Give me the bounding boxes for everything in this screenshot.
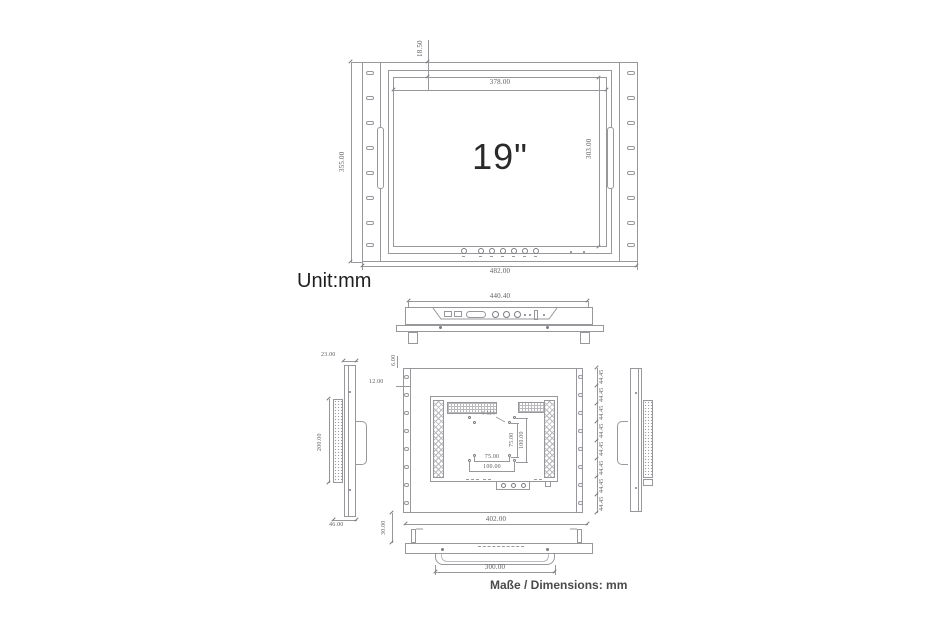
topview-foot-left [408,332,418,344]
dimensions-note: Maße / Dimensions: mm [490,578,627,592]
dim-ext-line [516,462,528,463]
connector-dot [524,314,526,316]
connector-port [545,481,551,487]
rack-slot [404,375,409,379]
osd-button-label-mark [523,256,526,257]
rear-ear-line-left [410,368,411,513]
rack-slot [404,483,409,487]
dim-panel-height: 355.00 [339,145,346,179]
dim-line-panel-height [351,62,352,262]
dim-rear-side-inset: 12.00 [369,379,384,385]
front-handle-right [607,127,614,189]
osd-button [533,248,539,254]
dim-rack-unit: 44.45 [599,496,605,512]
dim-top-offset: 18.50 [417,36,424,62]
dim-topview-width: 440.40 [476,293,524,300]
osd-button-label-mark [534,256,537,257]
screen-size-label: 19" [450,136,550,178]
rack-slot [627,121,635,125]
connector-mark [476,479,479,480]
rack-slot [578,375,583,379]
rack-slot [404,429,409,433]
rear-ear-line-right [576,368,577,513]
dim-side-top-depth: 23.00 [321,352,336,358]
dim-line-topview-width [408,301,588,302]
rack-slot [366,96,374,100]
rack-slot [366,221,374,225]
osd-button-label-mark [512,256,515,257]
rack-slot [578,465,583,469]
vesa-callout: 4-M4 [481,411,495,417]
connector-port [643,479,653,486]
osd-button-label-mark [479,256,482,257]
vesa-hole [468,416,471,419]
dim-ext-line [509,456,510,462]
dim-screen-height: 303.00 [586,132,593,166]
connector-dot [529,314,531,316]
osd-button [478,248,484,254]
front-handle-left [377,127,384,189]
dim-line-vent-height [329,399,330,483]
dim-rack-unit: 44.45 [599,387,605,403]
rear-vent-grid-right [518,402,545,413]
rack-slot [578,411,583,415]
screw-mark [546,326,549,329]
round-connector [503,311,510,318]
rack-slot [404,447,409,451]
dim-line-recess-width [435,572,555,573]
connector-mark [534,479,537,480]
rack-slot [627,146,635,150]
side-slab-face-line [348,365,349,517]
vga-connector [466,311,486,318]
rack-slot [627,71,635,75]
dim-ext-line [469,461,470,472]
mount-bracket [411,529,416,543]
dim-ext-line [351,62,362,63]
rack-slot [627,243,635,247]
round-connector [501,483,506,488]
rack-slot [578,483,583,487]
screw-mark [635,487,637,489]
dim-rack-unit: 44.45 [599,478,605,494]
connector-mark [483,479,486,480]
rack-slot [366,146,374,150]
screw-mark [546,548,549,551]
dim-ext-line [511,457,519,458]
dim-ext-line [514,461,515,472]
round-connector [492,311,499,318]
dim-side-bottom-depth: 46.00 [329,522,344,528]
dim-panel-width: 482.00 [474,268,526,275]
dim-vent-height: 200.00 [317,424,323,460]
side-slab [344,365,356,517]
rack-slot [578,429,583,433]
side-vent-strip [643,400,653,478]
dim-line-screen-width [393,90,607,91]
dim-line-vesa-v75 [517,423,518,457]
topview-flange [396,325,604,332]
dim-screen-width: 378.00 [474,79,526,86]
mount-bracket [577,529,582,543]
rack-slot [366,243,374,247]
dim-line-rear-width [405,524,588,525]
dim-rack-unit: 44.45 [599,441,605,457]
side-slab [630,368,642,512]
dim-vesa-height-75: 75.00 [509,428,515,452]
dim-line-bottom-gap [392,513,393,543]
dim-rack-unit: 44.45 [599,405,605,421]
front-ear-line-right [619,62,620,262]
dim-line-vesa-h100 [469,471,515,472]
round-connector [521,483,526,488]
rack-slot [627,221,635,225]
dim-rear-width: 402.00 [472,516,520,523]
ir-sensor [583,251,585,253]
osd-button [511,248,517,254]
dim-line [396,386,410,387]
topview-body [405,307,593,325]
screw-mark [635,392,637,394]
osd-button [500,248,506,254]
screw-mark [441,548,444,551]
connector-mark [471,479,474,480]
technical-drawing-canvas: 19" 18.50 378.00 303.00 355.00 482.00 [0,0,950,630]
side-handle [356,421,367,465]
dim-vesa-width-100: 100.00 [469,464,515,470]
dim-ext-line [397,356,398,368]
side-slab-face-line [638,368,639,512]
dim-vesa-height-100: 100.00 [519,426,525,454]
dim-recess-width: 300.00 [471,564,519,571]
rack-slot [404,501,409,505]
side-handle [617,421,628,465]
osd-button [489,248,495,254]
rack-slot [578,501,583,505]
rack-slot [578,393,583,397]
connector-mark [488,479,491,480]
rack-slot [578,447,583,451]
round-connector [511,483,516,488]
dim-line-screen-height [599,77,600,247]
rack-slot [366,121,374,125]
dim-line-top-offset [428,40,429,90]
dim-ext-line [516,418,528,419]
connector-port [534,310,538,320]
screw-mark [349,391,351,393]
connector-dot [543,314,545,316]
dim-ext-line [511,423,519,424]
rear-vent-strip-left [433,400,444,478]
rack-slot [366,71,374,75]
dim-bottom-gap: 30.00 [381,519,387,537]
round-connector [514,311,521,318]
dim-ext-line [474,456,475,462]
osd-button-label-mark [490,256,493,257]
side-vent-strip [333,399,343,483]
centerline-mark [478,546,524,547]
osd-button [522,248,528,254]
rack-slot [366,171,374,175]
connector-mark [466,479,469,480]
screw-mark [349,489,351,491]
rack-slot [627,96,635,100]
dim-ext-line [351,262,362,263]
connector-port [454,311,462,317]
rack-slot [404,465,409,469]
bottomview-body [405,543,593,554]
dim-vesa-width-75: 75.00 [474,454,510,460]
rack-slot [627,196,635,200]
screw-mark [439,326,442,329]
topview-foot-right [580,332,590,344]
rack-slot [366,196,374,200]
osd-button [461,248,467,254]
unit-label: Unit:mm [297,270,371,293]
rack-slot [627,171,635,175]
connector-mark [539,479,542,480]
bottom-recess-inner [441,554,549,562]
connector-port [444,311,452,317]
osd-button-label-mark [501,256,504,257]
led-indicator [570,251,572,253]
dim-line-vesa-v100 [526,418,527,462]
vesa-hole [473,421,476,424]
rack-slot [404,393,409,397]
dim-line-vesa-h75 [474,461,509,462]
rear-vent-strip-right [544,400,555,478]
dim-rack-unit: 44.45 [599,369,605,385]
osd-button-label-mark [462,256,465,257]
rack-slot [404,411,409,415]
dim-rack-unit: 44.45 [599,460,605,476]
dim-rack-unit: 44.45 [599,423,605,439]
